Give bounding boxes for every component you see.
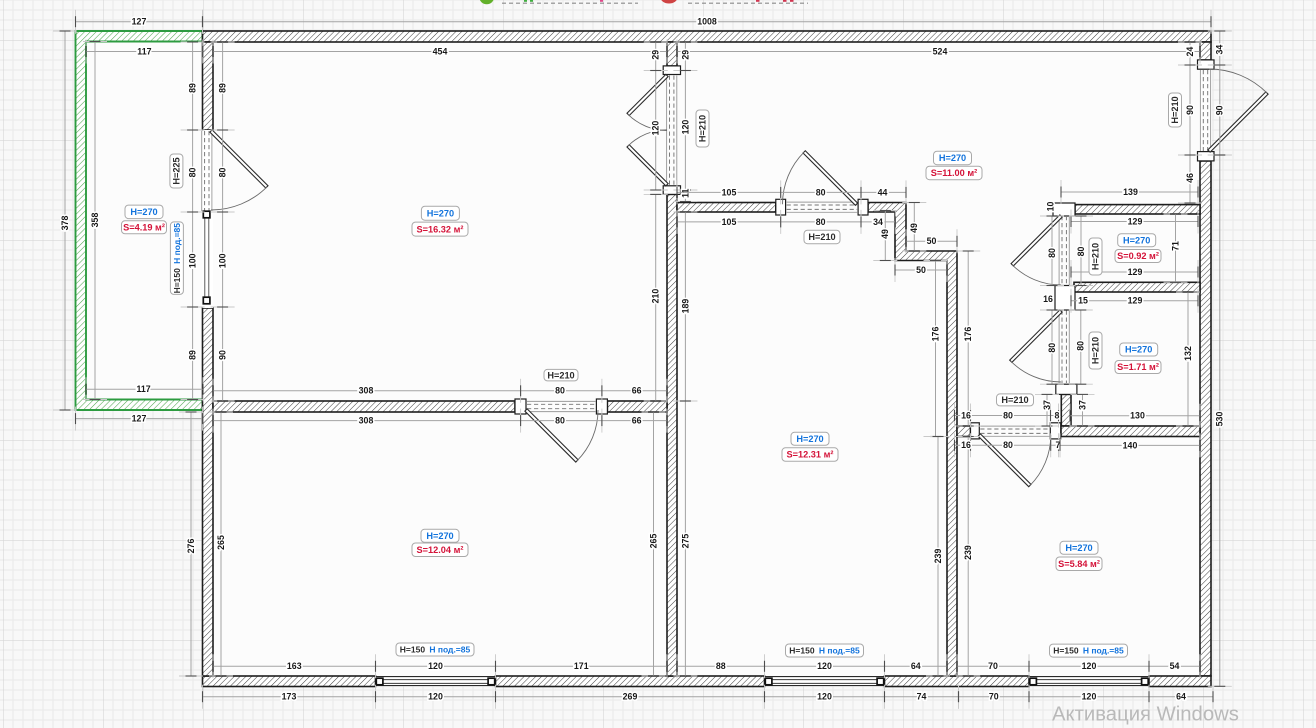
svg-text:120: 120 <box>817 692 832 702</box>
svg-text:173: 173 <box>282 692 297 702</box>
svg-text:H=270: H=270 <box>1065 543 1092 553</box>
svg-text:90: 90 <box>1215 105 1225 115</box>
svg-text:358: 358 <box>90 213 100 228</box>
svg-text:265: 265 <box>648 534 658 549</box>
svg-text:49: 49 <box>909 223 919 233</box>
svg-text:120: 120 <box>428 692 443 702</box>
svg-text:105: 105 <box>722 187 737 197</box>
svg-text:530: 530 <box>1215 412 1225 427</box>
svg-text:129: 129 <box>1128 296 1143 306</box>
svg-text:127: 127 <box>132 17 147 27</box>
svg-text:46: 46 <box>1185 173 1195 183</box>
svg-text:74: 74 <box>917 692 927 702</box>
svg-text:239: 239 <box>933 549 943 564</box>
svg-text:80: 80 <box>816 217 826 227</box>
svg-text:163: 163 <box>287 661 302 671</box>
svg-text:71: 71 <box>1170 241 1180 251</box>
svg-text:66: 66 <box>632 386 642 396</box>
svg-text:S=12.04 м²: S=12.04 м² <box>417 545 464 555</box>
svg-text:S=1.71 м²: S=1.71 м² <box>1117 362 1159 372</box>
svg-text:120: 120 <box>1082 661 1097 671</box>
svg-text:H=210: H=210 <box>1091 243 1101 270</box>
svg-text:34: 34 <box>1215 45 1225 55</box>
svg-text:37: 37 <box>1077 400 1087 410</box>
svg-text:100: 100 <box>218 253 228 268</box>
svg-text:29: 29 <box>680 50 690 60</box>
svg-text:129: 129 <box>1128 267 1143 277</box>
svg-text:308: 308 <box>359 416 374 426</box>
svg-text:171: 171 <box>574 661 589 671</box>
svg-text:129: 129 <box>1128 216 1143 226</box>
svg-text:66: 66 <box>632 416 642 426</box>
svg-text:105: 105 <box>722 217 737 227</box>
svg-text:269: 269 <box>623 692 638 702</box>
svg-text:275: 275 <box>680 534 690 549</box>
svg-text:120: 120 <box>1082 692 1097 702</box>
svg-text:80: 80 <box>188 168 198 178</box>
svg-text:H=270: H=270 <box>1125 345 1152 355</box>
svg-text:89: 89 <box>188 83 198 93</box>
svg-text:130: 130 <box>1130 411 1145 421</box>
svg-text:H=270: H=270 <box>426 531 453 541</box>
svg-text:120: 120 <box>817 661 832 671</box>
svg-text:117: 117 <box>136 384 150 394</box>
svg-text:176: 176 <box>930 327 940 342</box>
svg-text:265: 265 <box>216 535 226 550</box>
svg-text:88: 88 <box>716 661 726 671</box>
svg-text:80: 80 <box>555 386 565 396</box>
svg-text:10: 10 <box>1045 202 1055 212</box>
svg-text:80: 80 <box>1047 248 1057 258</box>
svg-text:16: 16 <box>961 440 971 450</box>
svg-text:H=270: H=270 <box>939 153 966 163</box>
svg-text:524: 524 <box>933 46 948 56</box>
svg-text:11: 11 <box>680 188 690 197</box>
svg-text:132: 132 <box>1183 346 1193 361</box>
svg-text:90: 90 <box>1185 105 1195 115</box>
svg-text:S=4.19 м²: S=4.19 м² <box>123 223 165 233</box>
svg-text:117: 117 <box>137 46 151 56</box>
svg-text:80: 80 <box>555 416 565 426</box>
svg-text:80: 80 <box>218 168 228 178</box>
svg-text:64: 64 <box>1176 692 1186 702</box>
svg-text:276: 276 <box>186 539 196 554</box>
svg-text:S=11.00 м²: S=11.00 м² <box>931 168 977 178</box>
svg-text:210: 210 <box>651 289 661 304</box>
svg-text:1008: 1008 <box>697 17 717 27</box>
svg-text:Активация Windows: Активация Windows <box>1052 704 1239 726</box>
svg-text:H=210: H=210 <box>808 232 835 242</box>
svg-text:H=270: H=270 <box>796 434 823 444</box>
svg-text:H=210: H=210 <box>698 115 708 142</box>
svg-text:H=150 H под.=85: H=150 H под.=85 <box>400 644 471 654</box>
svg-text:189: 189 <box>680 299 690 314</box>
svg-text:H=210: H=210 <box>547 370 574 380</box>
svg-text:378: 378 <box>60 216 70 231</box>
svg-text:80: 80 <box>1003 410 1013 420</box>
svg-text:H=270: H=270 <box>130 207 157 217</box>
svg-text:139: 139 <box>1123 187 1138 197</box>
svg-text:16: 16 <box>961 410 971 420</box>
svg-text:80: 80 <box>1076 247 1086 257</box>
svg-text:70: 70 <box>988 661 998 671</box>
svg-text:8: 8 <box>1055 410 1060 420</box>
svg-text:H=270: H=270 <box>427 208 454 218</box>
svg-text:50: 50 <box>916 265 926 275</box>
svg-text:120: 120 <box>428 661 443 671</box>
svg-text:176: 176 <box>963 327 973 342</box>
svg-text:H=210: H=210 <box>1091 337 1101 364</box>
svg-text:24: 24 <box>1185 47 1195 57</box>
svg-text:90: 90 <box>218 350 228 360</box>
svg-text:89: 89 <box>188 350 198 360</box>
svg-text:80: 80 <box>1076 341 1086 351</box>
svg-text:15: 15 <box>1078 295 1088 305</box>
svg-text:80: 80 <box>1003 440 1013 450</box>
svg-text:44: 44 <box>878 187 888 197</box>
svg-text:H=150 H под.=85: H=150 H под.=85 <box>789 645 860 655</box>
svg-text:120: 120 <box>680 120 690 135</box>
svg-text:S=16.32 м²: S=16.32 м² <box>417 224 464 234</box>
svg-text:140: 140 <box>1123 440 1138 450</box>
svg-text:54: 54 <box>1170 661 1180 671</box>
svg-text:S=0.92 м²: S=0.92 м² <box>1117 251 1159 261</box>
svg-text:89: 89 <box>218 83 228 93</box>
svg-text:S=5.84 м²: S=5.84 м² <box>1058 559 1100 569</box>
svg-text:H=150 H под.=85: H=150 H под.=85 <box>1053 646 1124 656</box>
svg-text:64: 64 <box>911 661 921 671</box>
svg-text:29: 29 <box>651 50 661 60</box>
svg-text:308: 308 <box>359 386 374 396</box>
svg-text:H=210: H=210 <box>1001 395 1028 405</box>
svg-text:50: 50 <box>927 236 937 246</box>
svg-text:S=12.31 м²: S=12.31 м² <box>787 450 834 460</box>
svg-text:120: 120 <box>651 121 661 136</box>
svg-text:70: 70 <box>989 692 999 702</box>
svg-text:49: 49 <box>880 229 890 239</box>
svg-text:34: 34 <box>873 217 883 227</box>
svg-text:H=150 H под.=85: H=150 H под.=85 <box>172 223 182 294</box>
svg-text:100: 100 <box>188 253 198 268</box>
svg-text:454: 454 <box>433 46 448 56</box>
svg-text:80: 80 <box>1047 343 1057 353</box>
svg-text:239: 239 <box>963 545 973 560</box>
svg-text:80: 80 <box>816 187 826 197</box>
svg-text:16: 16 <box>1043 294 1053 304</box>
svg-text:127: 127 <box>132 414 147 424</box>
svg-text:H=210: H=210 <box>1170 96 1180 123</box>
svg-text:H=270: H=270 <box>1123 235 1150 245</box>
svg-text:H=225: H=225 <box>172 157 182 184</box>
